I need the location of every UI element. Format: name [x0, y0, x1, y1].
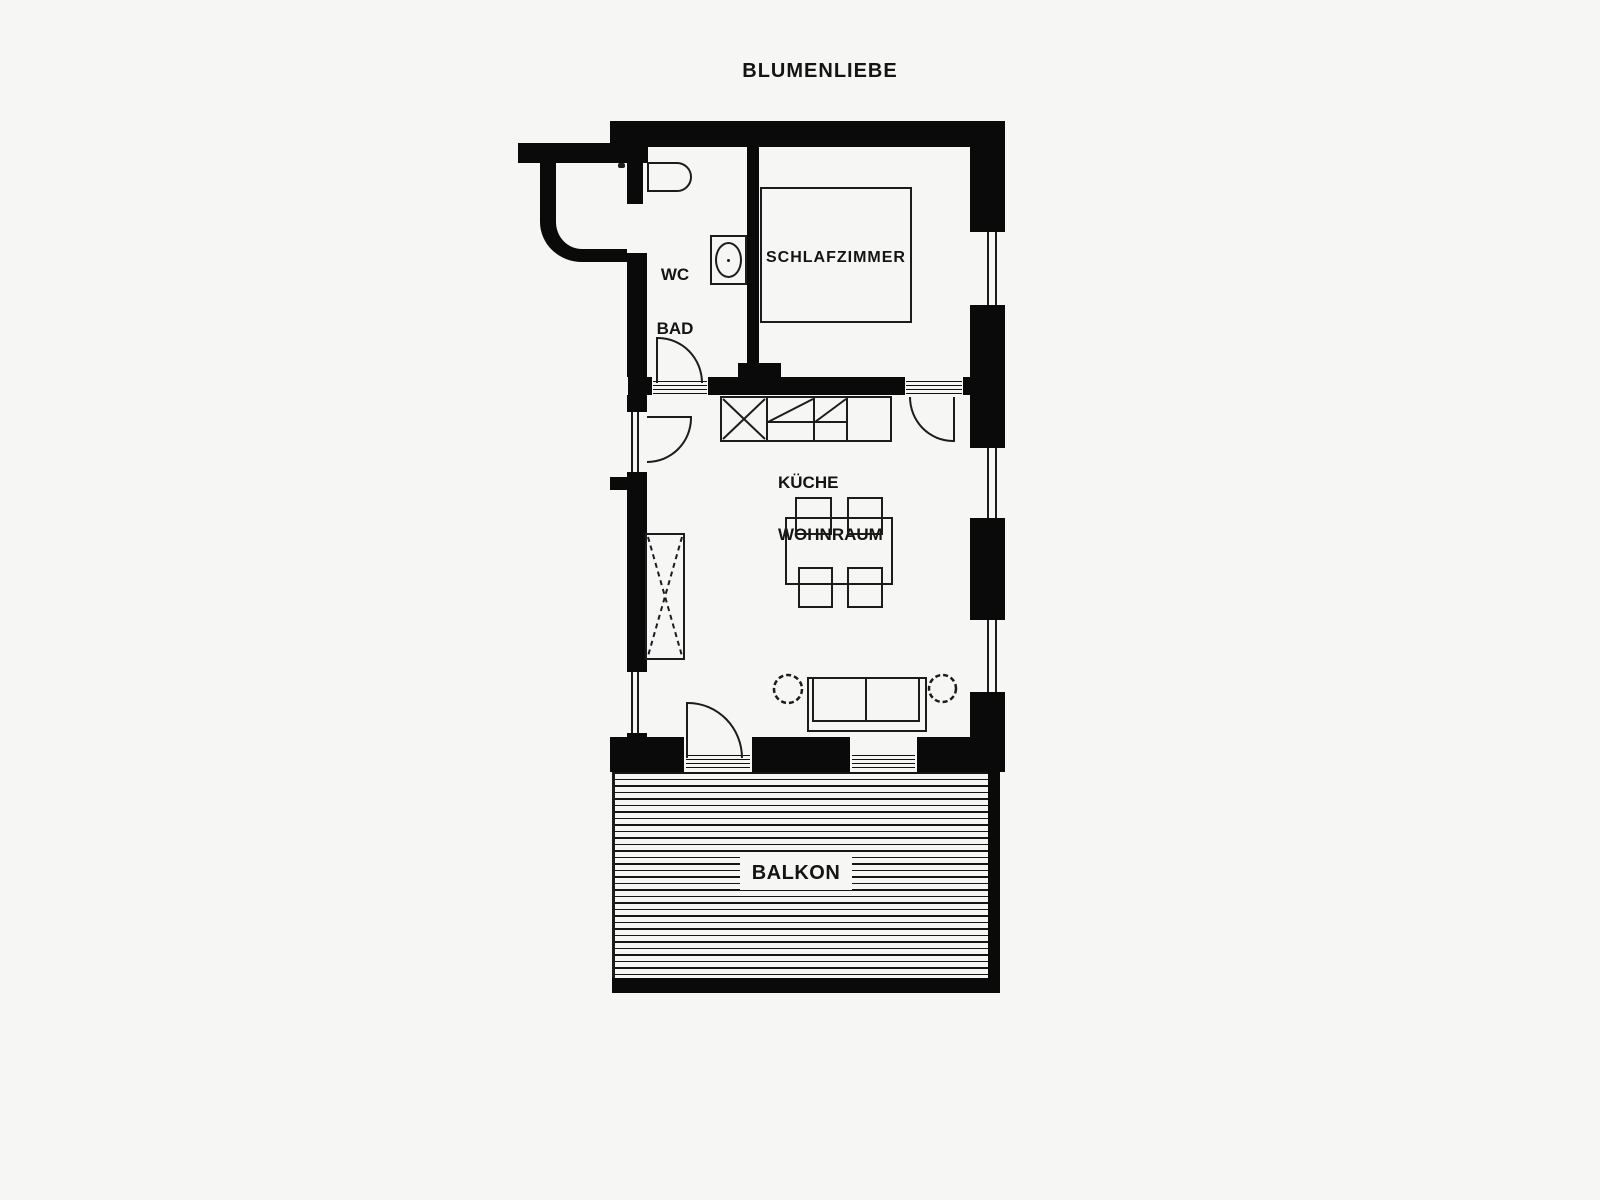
- sofa-cushion-divider: [865, 677, 867, 722]
- kitchen-counter-detail-lines: [720, 396, 892, 442]
- entry-porch-wall: [540, 163, 628, 262]
- floor-plan: BLUMENLIEBE WC BAD: [0, 0, 1600, 1200]
- exterior-wall-top: [610, 121, 1005, 147]
- balcony-door-sill: [686, 763, 750, 768]
- living-label-line1: KÜCHE: [778, 473, 838, 492]
- entry-mark: [618, 163, 625, 168]
- bedroom-door-swing: [909, 397, 953, 442]
- west-wall-stub: [610, 477, 627, 490]
- bathtub: [647, 162, 692, 192]
- window-frame: [637, 672, 639, 733]
- balcony-label: BALKON: [740, 856, 852, 890]
- bathroom-west-wall: [627, 253, 647, 377]
- plan-title: BLUMENLIEBE: [735, 60, 905, 83]
- bathroom-bedroom-wall-block: [738, 363, 781, 377]
- bathroom-label-line2: BAD: [657, 319, 694, 338]
- window-frame: [995, 448, 997, 518]
- bathroom-door-swing: [658, 337, 703, 383]
- window-frame: [987, 232, 989, 305]
- window-frame: [631, 672, 633, 733]
- balcony-edge-bottom: [612, 978, 1000, 993]
- dining-table: [785, 517, 893, 585]
- balcony-edge-right: [988, 772, 1000, 993]
- tall-cabinet-cross: [645, 533, 685, 660]
- bathroom-door-sill: [653, 389, 707, 394]
- window-frame: [987, 620, 989, 692]
- window-south-sill: [852, 755, 915, 760]
- washbasin-drain: [727, 259, 730, 262]
- side-table: [926, 672, 959, 705]
- side-table: [771, 672, 805, 706]
- window-frame: [631, 412, 633, 472]
- window-south-sill: [852, 763, 915, 768]
- balcony: BALKON: [612, 772, 1000, 993]
- bathroom-label: WC BAD: [650, 234, 700, 342]
- bathroom-bedroom-wall: [747, 147, 759, 363]
- entry-door-opening: [627, 204, 643, 253]
- bathroom-label-line1: WC: [661, 265, 689, 284]
- window-frame: [987, 448, 989, 518]
- window-frame: [995, 620, 997, 692]
- bedroom-label: SCHLAFZIMMER: [760, 249, 912, 267]
- kitchen-door-swing: [647, 418, 692, 463]
- window-frame: [637, 412, 639, 472]
- exterior-wall-south: [610, 737, 1005, 772]
- balcony-door-swing: [688, 702, 743, 758]
- bedroom-door-sill: [906, 389, 962, 394]
- window-frame: [995, 232, 997, 305]
- bedroom-door-sill: [906, 381, 962, 386]
- bedroom-door-leaf: [953, 397, 955, 442]
- entry-junction-wall: [627, 147, 643, 204]
